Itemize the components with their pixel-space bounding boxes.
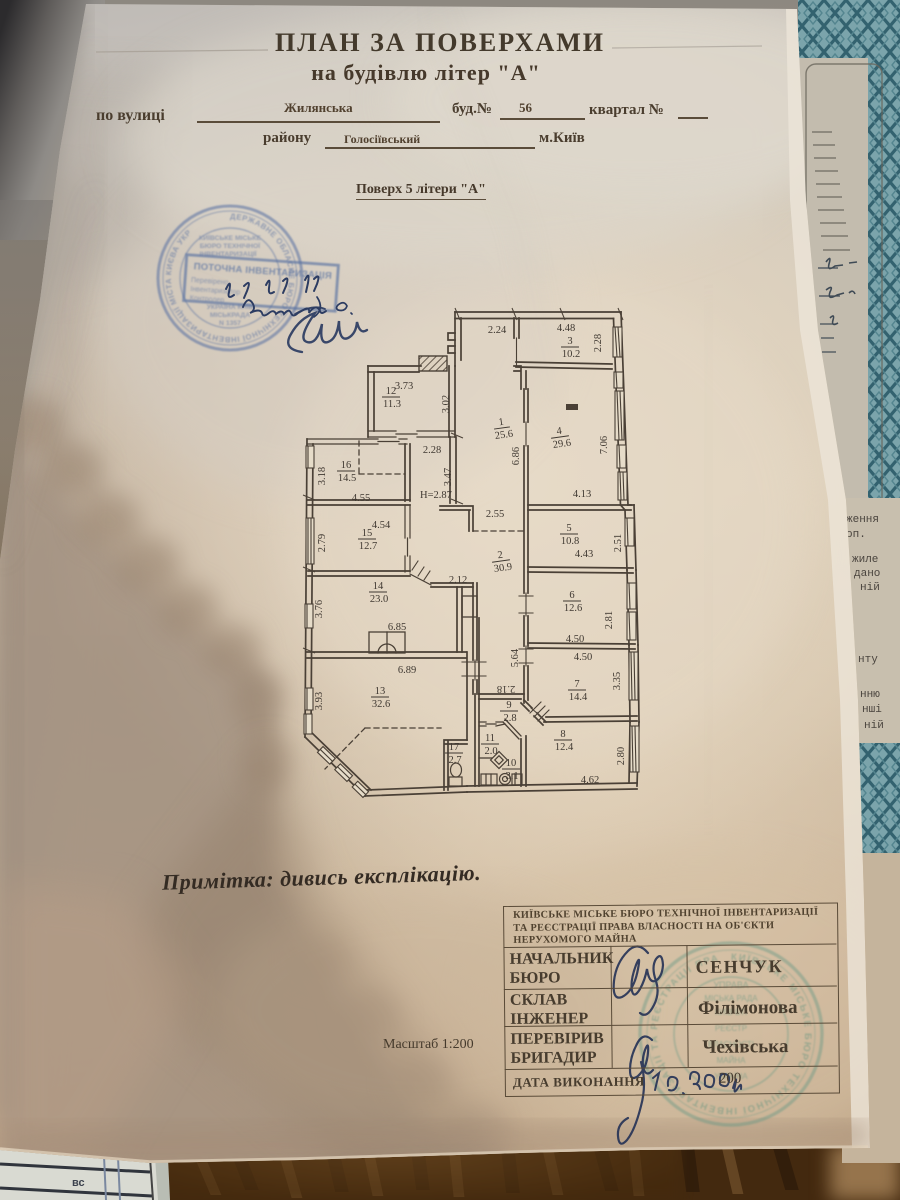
- svg-text:КИЇВСЬКЕ МІСЬКЕ: КИЇВСЬКЕ МІСЬКЕ: [199, 234, 261, 242]
- svg-text:Контролер: Контролер: [189, 295, 224, 304]
- svg-text:БЮРО ТЕХНІЧНОЇ: БЮРО ТЕХНІЧНОЇ: [200, 242, 262, 250]
- svg-text:МІСЬКРАДА: МІСЬКРАДА: [210, 312, 250, 319]
- svg-text:Перевірено: Перевірено: [191, 276, 229, 287]
- svg-text:N 1357: N 1357: [219, 320, 241, 327]
